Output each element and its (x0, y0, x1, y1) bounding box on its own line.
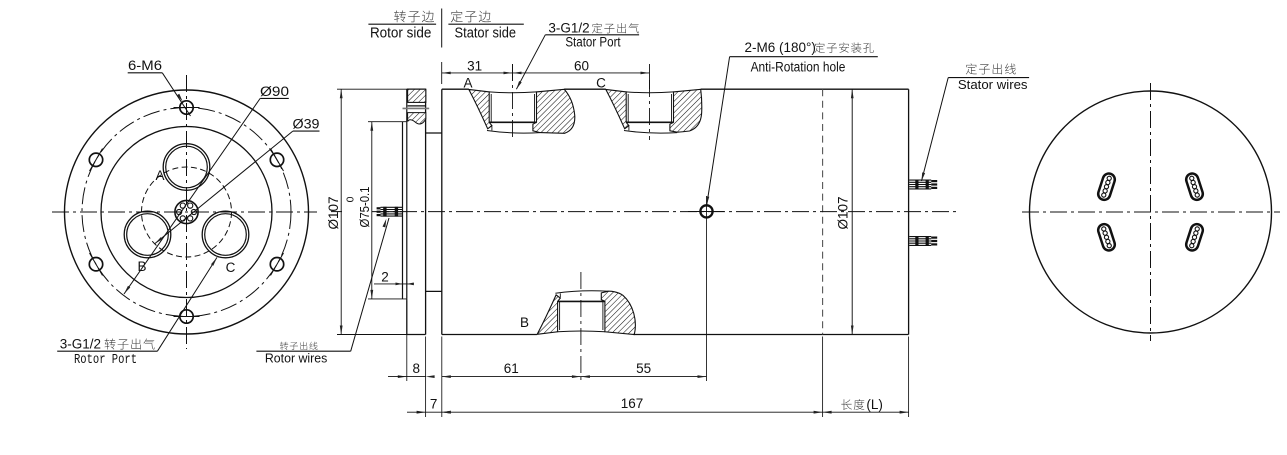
svg-text:2: 2 (381, 270, 389, 285)
svg-text:Stator side: Stator side (455, 25, 517, 42)
svg-text:Rotor wires: Rotor wires (265, 351, 328, 366)
svg-text:3-G1/2: 3-G1/2 (60, 337, 101, 352)
svg-text:Ø107: Ø107 (836, 196, 851, 229)
svg-text:A: A (155, 168, 164, 183)
svg-text:2-M6 (180°): 2-M6 (180°) (745, 40, 816, 55)
svg-text:Ø90: Ø90 (260, 84, 289, 99)
svg-text:Stator wires: Stator wires (958, 77, 1028, 92)
svg-text:Anti-Rotation hole: Anti-Rotation hole (751, 60, 846, 75)
svg-text:167: 167 (621, 396, 644, 411)
svg-text:3-G1/2: 3-G1/2 (548, 21, 589, 36)
svg-text:31: 31 (467, 58, 482, 73)
svg-text:A: A (463, 76, 472, 91)
svg-text:6-M6: 6-M6 (128, 58, 162, 73)
svg-text:Ø75-0.1: Ø75-0.1 (357, 187, 372, 228)
svg-text:0: 0 (345, 196, 357, 202)
svg-text:60: 60 (574, 58, 589, 73)
svg-text:B: B (520, 315, 529, 330)
svg-text:7: 7 (430, 397, 438, 412)
svg-text:C: C (226, 260, 236, 275)
svg-text:Stator Port: Stator Port (565, 35, 621, 50)
svg-text:Rotor side: Rotor side (370, 25, 432, 42)
svg-text:61: 61 (504, 361, 519, 376)
svg-text:C: C (596, 76, 606, 91)
svg-text:Ø39: Ø39 (293, 117, 320, 132)
svg-text:8: 8 (412, 361, 420, 376)
svg-text:B: B (137, 259, 146, 274)
svg-text:(L): (L) (866, 397, 883, 412)
svg-text:Rotor Port: Rotor Port (74, 353, 137, 368)
svg-text:55: 55 (636, 361, 651, 376)
svg-text:Ø107: Ø107 (326, 196, 341, 229)
